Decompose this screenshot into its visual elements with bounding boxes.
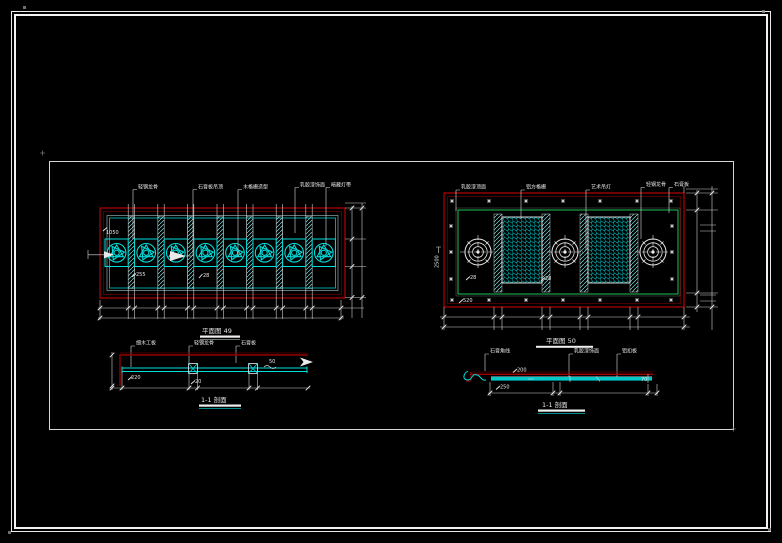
- leader-label: 木格栅造型: [243, 184, 268, 191]
- right-plan-title: 平面图 50: [546, 337, 576, 345]
- left-plan-title: 平面图 49: [202, 327, 232, 335]
- leader-label: 石膏板: [674, 181, 689, 188]
- leader-label: 石膏板: [241, 340, 256, 347]
- right-section-title: 1-1 剖面: [542, 400, 568, 409]
- dim-label: 50: [269, 359, 275, 365]
- leader-label: 乳胶漆顶面: [461, 184, 486, 191]
- leader-lines: [131, 346, 240, 367]
- leader-label: 暗藏灯带: [331, 182, 351, 189]
- left-section: 细木工板 轻钢龙骨 石膏板 220 20 50 1-1 剖面: [110, 340, 313, 409]
- leader-label: 轻钢龙骨: [646, 181, 666, 188]
- leader-label: 铝方格栅: [526, 184, 546, 191]
- right-plan: 乳胶漆顶面 铝方格栅 艺术吊灯 轻钢龙骨 石膏板 2500 28 28 520 …: [435, 181, 719, 348]
- leader-lines: [485, 354, 621, 377]
- left-section-title: 1-1 剖面: [201, 395, 227, 404]
- leader-label: 乳胶漆饰面: [574, 348, 599, 355]
- ceiling-lights: [460, 235, 671, 269]
- leader-label: 石膏角线: [490, 348, 510, 355]
- dim-label: 200: [517, 368, 527, 374]
- dim-label: 250: [500, 385, 510, 391]
- ceiling-board: [491, 377, 652, 381]
- left-plan: 轻钢龙骨 石膏板吊顶 木格栅造型 乳胶漆饰面 暗藏灯带 1050 255 28 …: [88, 182, 366, 340]
- dim-label: 28: [470, 275, 476, 281]
- leader-label: 铝扣板: [622, 348, 637, 355]
- leader-label: 石膏板吊顶: [198, 184, 223, 191]
- dim-label: 2500: [435, 255, 441, 268]
- cad-canvas: 轻钢龙骨 石膏板吊顶 木格栅造型 乳胶漆饰面 暗藏灯带 1050 255 28 …: [0, 0, 782, 543]
- dimension-lines: [98, 308, 364, 318]
- leader-label: 轻钢龙骨: [194, 340, 214, 347]
- leader-label: 乳胶漆饰面: [300, 182, 325, 189]
- cad-screenshot: { "drawing": { "left_plan": { "title": "…: [0, 0, 782, 543]
- dim-label: 255: [136, 272, 146, 278]
- break-arrow: [300, 358, 313, 367]
- leader-label: 轻钢龙骨: [138, 184, 158, 191]
- dim-label: 20: [195, 379, 201, 385]
- dim-label: 520: [463, 298, 473, 304]
- dim-label: 70: [641, 377, 647, 383]
- right-section: 石膏角线 乳胶漆饰面 铝扣板 200 250 70 1-1 剖面: [464, 348, 659, 414]
- dim-label: 1050: [106, 230, 119, 236]
- dim-label: 28: [545, 276, 551, 282]
- dim-label: 28: [203, 273, 209, 279]
- leader-label: 艺术吊灯: [591, 184, 611, 191]
- dim-label: 220: [131, 375, 141, 381]
- leader-label: 细木工板: [136, 340, 156, 347]
